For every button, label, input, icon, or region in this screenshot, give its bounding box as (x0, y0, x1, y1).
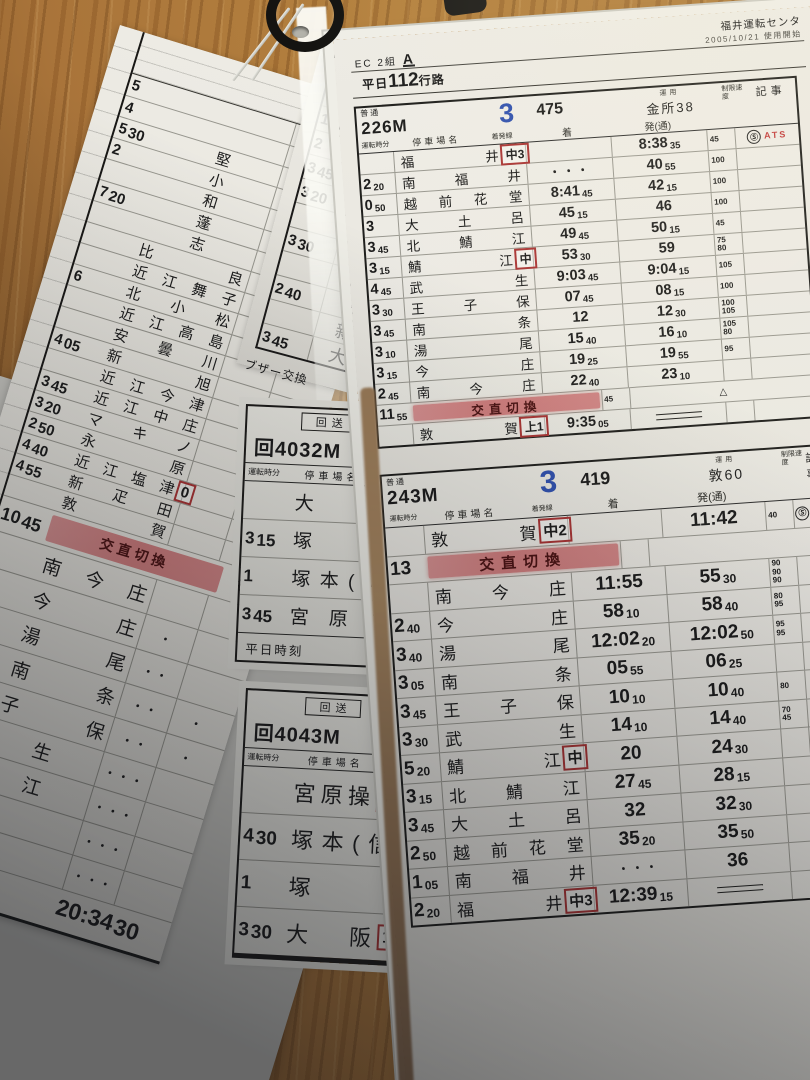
time-value: 2430 (711, 735, 749, 759)
remarks-label: 記事 (745, 78, 797, 111)
runtime-label: 運転時分 (244, 751, 292, 764)
time-value: 13 (389, 558, 412, 581)
time-value: 1410 (610, 713, 648, 737)
arrival-cell: 9:3505 (544, 409, 631, 435)
table-rows: 福井中38:383545ⓈATS220南福井・・・4055100050越前花堂8… (359, 124, 810, 447)
time-value: 050 (364, 197, 386, 214)
speed-cell: 909090 (768, 557, 798, 586)
runtime-cell: 315 (403, 782, 443, 812)
note-cell (750, 354, 810, 378)
speed-cell: 100 (716, 275, 745, 297)
time-value: 305 (397, 671, 424, 695)
speed-values: 100 (709, 156, 725, 166)
runtime-cell (389, 583, 429, 613)
time-value: 8:4145 (550, 182, 593, 201)
speed-values: 80 (778, 681, 789, 690)
time-value: 4945 (560, 225, 590, 243)
speed-cell: 45 (712, 212, 741, 234)
speed-cell (788, 841, 810, 870)
time-value: 46 (655, 198, 672, 215)
speed-cell (725, 401, 754, 423)
runtime-label: 運転時分 (245, 466, 292, 479)
time-value: 3230 (715, 791, 753, 815)
time-value: 250 (409, 842, 436, 866)
runtime-cell: 315 (366, 257, 401, 279)
speed-cell (784, 784, 810, 813)
note-cell (796, 554, 810, 585)
runtime-cell: 1 (237, 872, 283, 896)
runtime-cell: 330 (369, 299, 404, 321)
time-value: 5530 (699, 564, 737, 588)
sequence-number: 3 (525, 464, 571, 501)
time-value: 9:3505 (566, 413, 609, 432)
speed-values: 40 (766, 511, 777, 520)
time-value: 32 (624, 799, 647, 822)
time-value: 11:55 (595, 570, 644, 595)
track-box: 中 (562, 744, 589, 771)
time-value: 1155 (379, 406, 408, 424)
runtime-cell: 345 (405, 810, 445, 840)
track-box: 中3 (563, 886, 598, 913)
runtime-cell: 345 (238, 603, 284, 625)
time-value: 0555 (606, 656, 644, 680)
note-cell: △ (719, 386, 727, 398)
time-value: 1010 (608, 685, 646, 709)
time-value: 1 (240, 872, 252, 894)
time-value: 11:42 (689, 507, 738, 532)
runtime-cell: 340 (393, 640, 433, 670)
runtime-cell: 330 (399, 725, 439, 755)
time-value: 315 (245, 528, 276, 548)
runtime-cell (0, 547, 38, 562)
speed-values: 45 (708, 135, 719, 144)
time-value: ・・・ (617, 858, 660, 877)
time-value: 330 (238, 919, 273, 942)
time-value: 59 (658, 240, 675, 257)
runtime-cell: 345 (365, 236, 400, 258)
speed-cell: 9595 (772, 614, 802, 643)
speed-values: 100105 (719, 298, 736, 316)
time-value: 5810 (602, 599, 640, 623)
speed-values: 95 (722, 345, 733, 354)
runtime-cell: 305 (395, 668, 435, 698)
unit-mark: A (402, 52, 415, 67)
speed-cell: 7580 (714, 233, 743, 255)
note-cell (804, 668, 810, 699)
train-number: 回4032M (254, 431, 342, 464)
runtime-cell (0, 650, 7, 665)
binder-clip (442, 0, 487, 17)
time-value: 12:0250 (689, 620, 754, 646)
time-value: 345 (260, 327, 291, 350)
time-value: 4055 (646, 155, 676, 173)
runtime-cell: 445 (368, 278, 403, 300)
time-value: 240 (393, 615, 420, 639)
time-value: 3 (366, 219, 375, 236)
time-value: 36 (726, 849, 749, 872)
time-value: 12:0220 (590, 627, 655, 653)
time-value: 245 (377, 385, 399, 402)
time-value: 330 (371, 302, 393, 319)
speed-values: 7580 (715, 236, 727, 254)
speed-cell (790, 870, 810, 899)
time-value: 1045 (0, 503, 44, 534)
runtime-label: 運転時分 (358, 139, 393, 151)
time-value: 430 (243, 825, 278, 848)
note-cell (749, 333, 810, 357)
speed-values: 105 (716, 260, 732, 270)
note-cell (800, 611, 810, 642)
time-value: 310 (374, 343, 396, 360)
ats-mark-icon: Ⓢ (747, 129, 762, 144)
speed-cell: 100 (711, 191, 740, 213)
time-value: 520 (403, 757, 430, 781)
speed-values: 45 (602, 395, 613, 404)
time-value: 4515 (558, 204, 588, 222)
runtime-cell (0, 581, 28, 596)
runtime-cell: 3 (363, 215, 398, 237)
sequence-number: 3 (484, 97, 530, 130)
speed-values: 100 (718, 281, 734, 291)
time-value: 345 (367, 239, 389, 256)
time-value: 1540 (567, 329, 597, 347)
speed-cell: 45 (601, 388, 630, 410)
time-value: 1040 (707, 678, 745, 702)
timetable-226M: 普通 226M 3 475 運用 金所38 制限速度 記事 運転時分 停車場名 … (354, 76, 810, 449)
speed-cell: 40 (764, 500, 794, 529)
runtime-cell: 1155 (377, 403, 412, 425)
timetable-row: 330大阪11 (234, 906, 408, 962)
time-value: 9:0345 (556, 266, 599, 285)
speed-values: 9595 (774, 620, 786, 638)
time-value: 315 (369, 260, 391, 277)
runtime-cell: 050 (362, 194, 397, 216)
time-value: 2815 (713, 763, 751, 787)
departure-cell (686, 872, 792, 907)
speed-values: 7045 (780, 705, 792, 723)
deadhead-tag: 回送 (305, 697, 362, 718)
time-value: 8:3835 (638, 134, 681, 153)
runtime-cell: 105 (409, 867, 449, 897)
speed-values: 10580 (720, 319, 737, 337)
track-box: 中 (514, 247, 537, 269)
unit-code: EC 2組 (354, 53, 397, 71)
time-value: 2 (110, 140, 123, 159)
time-value: 12 (572, 309, 589, 326)
runtime-cell (378, 424, 413, 446)
speed-cell: 100105 (718, 296, 747, 318)
time-value: 315 (405, 785, 432, 809)
track-label: 着発線 (518, 501, 567, 514)
station-label: 停車場名 (292, 466, 374, 485)
speed-values: 909090 (769, 559, 782, 585)
time-value: 4 (123, 98, 136, 117)
speed-values: 8095 (772, 592, 784, 610)
speed-values: 45 (713, 219, 724, 228)
runtime-cell: 250 (407, 839, 447, 869)
time-value: ・・・ (549, 161, 592, 180)
time-value: 315 (376, 364, 398, 381)
speed-cell: 95 (721, 338, 750, 360)
runtime-cell: 430 (240, 825, 286, 849)
time-value: 20 (620, 742, 643, 765)
photo-train-timetable-cards: 54530堅2小和720蓬志比良近江舞子6北小松近江高島安曇川405新旭近江今津… (0, 0, 810, 1080)
runtime-cell: 240 (391, 611, 431, 641)
time-value: 220 (413, 899, 440, 923)
time-value: 1 (243, 566, 253, 585)
track-box: 中2 (538, 517, 573, 544)
speed-cell: 10580 (719, 317, 748, 339)
time-value: 5015 (650, 218, 680, 236)
time-value: 220 (363, 176, 385, 193)
speed-cell: 80 (776, 671, 806, 700)
runtime-cell: 13 (387, 554, 427, 584)
runtime-cell (0, 615, 17, 630)
time-value: 345 (241, 604, 272, 624)
speed-cell (774, 642, 804, 671)
speed-cell: 100 (708, 149, 737, 171)
runtime-cell: 520 (401, 753, 441, 783)
time-value: 1610 (658, 323, 688, 341)
track-box: 中3 (500, 142, 530, 165)
time-value: 3550 (717, 820, 755, 844)
runtime-label: 運転時分 (384, 511, 423, 524)
time-value: 0625 (705, 649, 743, 673)
speed-cell (782, 756, 810, 785)
speed-cell: 105 (715, 254, 744, 276)
runtime-cell: 245 (375, 383, 410, 405)
speed-cell: 7045 (778, 699, 808, 728)
runtime-cell (243, 789, 288, 791)
speed-cell (786, 813, 810, 842)
time-value: 240 (273, 279, 304, 302)
time-value: 6 (72, 266, 85, 285)
time-value: 2745 (614, 770, 652, 794)
runtime-cell: 345 (371, 320, 406, 342)
runtime-cell: 1045 (0, 502, 52, 538)
track-box: 上1 (519, 414, 549, 437)
note-cell: ⓈATS (795, 504, 810, 521)
time-value: 12:3915 (608, 883, 673, 909)
runtime-cell: 345 (397, 696, 437, 726)
runtime-cell: 1 (240, 565, 286, 587)
train-number: 回4043M (253, 716, 342, 750)
time-value: 445 (370, 281, 392, 298)
time-value: 0745 (564, 287, 594, 305)
note-cell: ⓈATS (792, 497, 810, 528)
operation-value: 敦60 (708, 463, 745, 485)
note-cell (753, 396, 810, 420)
time-value: 3520 (618, 827, 656, 851)
time-value: 2310 (661, 365, 691, 383)
time-value: 5840 (701, 592, 739, 616)
end-of-run-mark (655, 411, 701, 420)
time-value: 5330 (561, 246, 591, 264)
time-value: 5 (130, 77, 143, 96)
runtime-cell: 315 (242, 527, 288, 549)
table-rows: 敦賀中211:4240ⓈATS13交直切換南今庄11:5555309090902… (385, 497, 810, 926)
time-value: 105 (411, 871, 438, 895)
speed-cell: 100 (709, 170, 738, 192)
speed-cell (780, 728, 810, 757)
runtime-cell: 220 (411, 895, 451, 925)
station-name: 敦賀 (417, 417, 520, 444)
time-value: 1230 (656, 302, 686, 320)
runtime-cell (244, 499, 289, 501)
time-value: 345 (373, 322, 395, 339)
note-cell: ⓈATS (747, 128, 788, 145)
station-cell: 大阪 (279, 916, 378, 953)
note-cell (802, 639, 810, 670)
runtime-cell (385, 526, 425, 556)
runtime-cell: 315 (374, 362, 409, 384)
time-value: 9:0415 (647, 260, 690, 279)
speed-limit-label: 制限速度 (717, 81, 747, 113)
ats-mark-icon: Ⓢ (795, 506, 810, 521)
time-value: 0815 (655, 281, 685, 299)
time-value: 2240 (570, 371, 600, 389)
speed-cell (722, 359, 751, 381)
track-label: 着発線 (480, 129, 525, 142)
deadhead-tag: 回送 (301, 412, 358, 432)
time-value: 330 (401, 728, 428, 752)
speed-limit-label: 制限速度 (777, 447, 807, 483)
speed-values: 100 (712, 198, 728, 208)
duty-title: 平日112行路 (362, 72, 445, 92)
arrival-cell: 12:3915 (593, 879, 689, 913)
runtime-cell: 310 (372, 341, 407, 363)
speed-cell: 8095 (770, 585, 800, 614)
timetable-243M: 普通 243M 3 419 運用 敦60 制限速度 記事 運転時分 停車場名 着… (379, 443, 810, 928)
time-value: 4215 (648, 176, 678, 194)
speed-cell (619, 539, 649, 568)
time-value: 1440 (709, 706, 747, 730)
end-of-run-mark (717, 884, 763, 893)
station-cell: 宮原操 (287, 775, 377, 812)
time-value: 345 (407, 814, 434, 838)
runtime-cell: 330 (235, 919, 281, 943)
station-name: 福井 (454, 889, 565, 922)
time-value: 345 (399, 700, 426, 724)
time-value: 1955 (659, 344, 689, 362)
runtime-cell (359, 152, 394, 174)
note-cell (798, 582, 810, 613)
time-value: 1925 (569, 350, 599, 368)
ats-text: ATS (764, 129, 788, 141)
time-value: 340 (395, 643, 422, 667)
speed-cell: 45 (706, 128, 735, 150)
runtime-cell: 220 (361, 173, 396, 195)
speed-values: 100 (711, 177, 727, 187)
